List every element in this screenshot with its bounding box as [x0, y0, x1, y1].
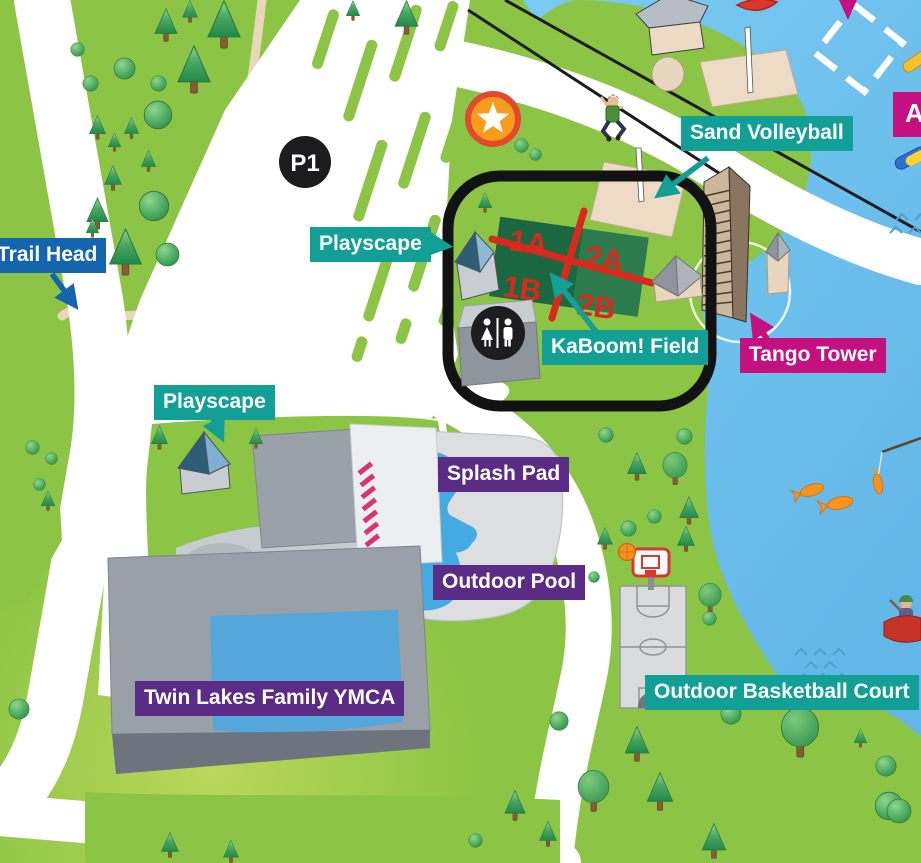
- label-ymca: Twin Lakes Family YMCA: [135, 681, 404, 716]
- sand-area: [652, 57, 684, 91]
- field-quadrant-2b: 2B: [575, 288, 618, 326]
- label-playscape-lower: Playscape: [154, 385, 275, 420]
- p1-marker: P1: [279, 136, 331, 188]
- restroom-icon: [471, 306, 525, 360]
- p1-label: P1: [290, 150, 319, 177]
- park-map: 1A 2A 1B 2B: [0, 0, 921, 863]
- restroom-building: [458, 300, 540, 386]
- star-icon: [468, 94, 518, 144]
- label-tango-tower: Tango Tower: [740, 338, 886, 373]
- playscape-upper-arrow: [429, 244, 446, 246]
- field-quadrant-2a: 2A: [583, 240, 626, 278]
- label-trail-head: Trail Head: [0, 238, 106, 273]
- label-sand-volleyball: Sand Volleyball: [681, 116, 853, 151]
- label-outdoor-pool: Outdoor Pool: [433, 565, 585, 600]
- label-aquatic-truncated: Ac: [893, 92, 921, 137]
- field-quadrant-1a: 1A: [507, 224, 550, 262]
- label-kaboom-field: KaBoom! Field: [542, 330, 708, 365]
- label-splash-pad: Splash Pad: [438, 457, 569, 492]
- label-outdoor-basketball-court: Outdoor Basketball Court: [645, 675, 919, 710]
- label-playscape-upper: Playscape: [310, 227, 431, 262]
